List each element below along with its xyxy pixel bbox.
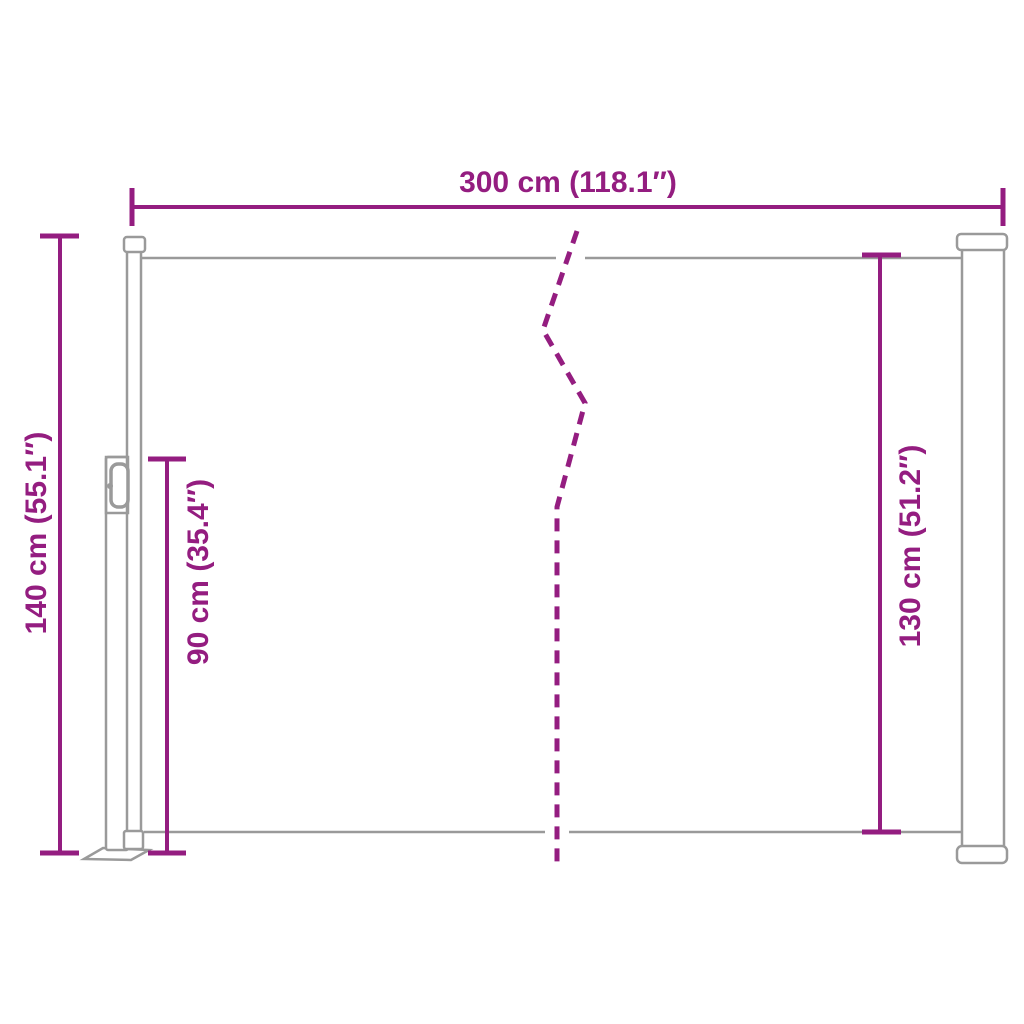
left-post-sleeve xyxy=(106,457,128,850)
post-height-dimension: 90 cm (35.4″) xyxy=(148,459,215,853)
left-post xyxy=(84,237,149,860)
total-height-dimension-label: 140 cm (55.1″) xyxy=(20,432,53,635)
width-dimension: 300 cm (118.1″) xyxy=(132,166,1003,226)
total-height-dimension: 140 cm (55.1″) xyxy=(20,236,79,853)
width-dimension-label: 300 cm (118.1″) xyxy=(459,166,677,199)
handle-grip xyxy=(111,464,128,507)
fabric-height-dimension: 130 cm (51.2″) xyxy=(862,255,927,832)
cassette-top-cap xyxy=(957,234,1007,250)
cassette-bottom-cap xyxy=(957,846,1007,863)
awning-diagram-canvas: 300 cm (118.1″) 140 cm (55.1″) 90 cm (35… xyxy=(0,0,1024,1024)
handle-grip-notch xyxy=(107,483,113,489)
cassette-post xyxy=(957,234,1007,863)
fabric-break-line xyxy=(543,231,585,862)
cassette-body xyxy=(962,246,1004,850)
left-post-foot-bracket xyxy=(124,831,143,849)
left-post-top-cap xyxy=(124,237,145,252)
post-height-dimension-label: 90 cm (35.4″) xyxy=(182,479,215,665)
product-dimension-diagram: 300 cm (118.1″) 140 cm (55.1″) 90 cm (35… xyxy=(0,0,1024,1024)
fabric-height-dimension-label: 130 cm (51.2″) xyxy=(894,445,927,648)
left-post-body xyxy=(127,250,141,834)
